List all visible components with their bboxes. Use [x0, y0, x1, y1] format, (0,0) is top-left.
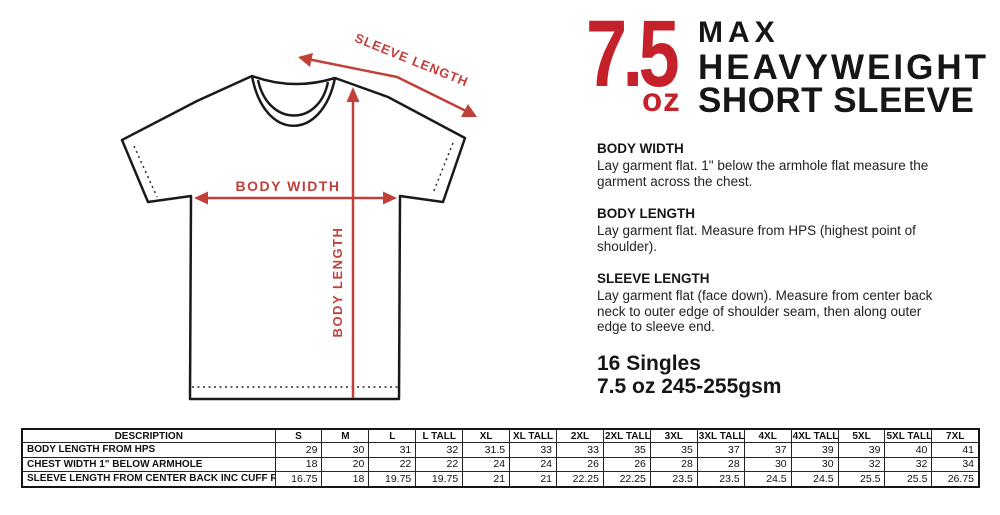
size-table-value-cell: 37: [697, 443, 744, 458]
size-table-header-cell: L TALL: [416, 429, 463, 443]
size-table-header-cell: 3XL TALL: [697, 429, 744, 443]
size-table-value-cell: 26: [603, 457, 650, 472]
size-table-value-cell: 18: [322, 472, 369, 487]
body-length-label: BODY LENGTH: [330, 227, 345, 338]
size-table-value-cell: 34: [932, 457, 979, 472]
size-table-header-cell: L: [369, 429, 416, 443]
size-table-value-cell: 22: [416, 457, 463, 472]
size-table-value-cell: 24: [463, 457, 510, 472]
size-table-value-cell: 25.5: [838, 472, 885, 487]
spec-text: Lay garment flat. 1" below the armhole f…: [597, 158, 997, 189]
size-table-header-cell: XL TALL: [510, 429, 557, 443]
size-table-value-cell: 23.5: [697, 472, 744, 487]
size-table-value-cell: 32: [416, 443, 463, 458]
size-table-value-cell: 19.75: [369, 472, 416, 487]
size-table-value-cell: 24.5: [791, 472, 838, 487]
size-table-value-cell: 28: [650, 457, 697, 472]
spec-heading: BODY WIDTH: [597, 141, 997, 156]
size-table-value-cell: 20: [322, 457, 369, 472]
size-table-value-cell: 28: [697, 457, 744, 472]
spec-text: Lay garment flat. Measure from HPS (high…: [597, 223, 997, 254]
size-table-header-cell: 7XL: [932, 429, 979, 443]
weight-unit: oz: [642, 83, 681, 116]
spec-text: Lay garment flat (face down). Measure fr…: [597, 288, 997, 335]
size-table-header-cell: 4XL: [744, 429, 791, 443]
spec-heading: SLEEVE LENGTH: [597, 271, 997, 286]
size-table-header-cell: 5XL: [838, 429, 885, 443]
size-table-row: CHEST WIDTH 1" BELOW ARMHOLE182022222424…: [22, 457, 979, 472]
size-table-value-cell: 40: [885, 443, 932, 458]
size-table-value-cell: 31: [369, 443, 416, 458]
size-table-value-cell: 22.25: [603, 472, 650, 487]
size-table-value-cell: 39: [838, 443, 885, 458]
size-table-value-cell: 25.5: [885, 472, 932, 487]
title-line-heavyweight: HEAVYWEIGHT: [698, 50, 989, 85]
size-table-value-cell: 39: [791, 443, 838, 458]
size-table-header-cell: M: [322, 429, 369, 443]
size-table-value-cell: 21: [510, 472, 557, 487]
size-table-value-cell: 16.75: [275, 472, 322, 487]
size-table-value-cell: 26.75: [932, 472, 979, 487]
size-table-value-cell: 32: [838, 457, 885, 472]
size-table-value-cell: 30: [744, 457, 791, 472]
fabric-info: 16 Singles 7.5 oz 245-255gsm: [597, 352, 781, 398]
size-table-value-cell: 32: [885, 457, 932, 472]
size-table-value-cell: 22.25: [557, 472, 604, 487]
size-table-value-cell: 33: [557, 443, 604, 458]
fabric-singles: 16 Singles: [597, 352, 781, 375]
spec-body-length: BODY LENGTH Lay garment flat. Measure fr…: [597, 206, 997, 254]
size-table-header-cell: 4XL TALL: [791, 429, 838, 443]
size-table-value-cell: 37: [744, 443, 791, 458]
fabric-weight: 7.5 oz 245-255gsm: [597, 375, 781, 398]
title-line-short-sleeve: SHORT SLEEVE: [698, 83, 974, 118]
size-table-value-cell: 35: [650, 443, 697, 458]
tshirt-outline-shape: [122, 76, 465, 399]
spec-body-width: BODY WIDTH Lay garment flat. 1" below th…: [597, 141, 997, 189]
size-table-value-cell: 24: [510, 457, 557, 472]
size-table-row-label: CHEST WIDTH 1" BELOW ARMHOLE: [22, 457, 275, 472]
title-line-max: MAX: [698, 18, 780, 48]
size-table-value-cell: 26: [557, 457, 604, 472]
tshirt-diagram: BODY WIDTH BODY LENGTH SLEEVE LENGTH: [0, 0, 580, 420]
size-table-header-cell: 3XL: [650, 429, 697, 443]
spec-heading: BODY LENGTH: [597, 206, 997, 221]
size-table-value-cell: 29: [275, 443, 322, 458]
sleeve-length-label: SLEEVE LENGTH: [353, 30, 471, 89]
size-table-row-label: BODY LENGTH FROM HPS: [22, 443, 275, 458]
size-table-header-cell: 2XL TALL: [603, 429, 650, 443]
size-table-value-cell: 41: [932, 443, 979, 458]
size-table-header-cell: DESCRIPTION: [22, 429, 275, 443]
measurement-instructions: BODY WIDTH Lay garment flat. 1" below th…: [597, 141, 997, 352]
size-table-value-cell: 18: [275, 457, 322, 472]
size-table-body: BODY LENGTH FROM HPS2930313231.533333535…: [22, 443, 979, 487]
size-chart-page: BODY WIDTH BODY LENGTH SLEEVE LENGTH 7.5…: [0, 0, 1000, 515]
sleeve-length-arrowhead-left: [298, 53, 313, 67]
size-table-row-label: SLEEVE LENGTH FROM CENTER BACK INC CUFF …: [22, 472, 275, 487]
size-table-value-cell: 19.75: [416, 472, 463, 487]
size-table-value-cell: 24.5: [744, 472, 791, 487]
size-table-header-cell: 2XL: [557, 429, 604, 443]
body-width-label: BODY WIDTH: [236, 178, 341, 194]
size-table-header-cell: 5XL TALL: [885, 429, 932, 443]
size-table-value-cell: 30: [791, 457, 838, 472]
size-table-row: SLEEVE LENGTH FROM CENTER BACK INC CUFF …: [22, 472, 979, 487]
size-table-value-cell: 33: [510, 443, 557, 458]
size-table-value-cell: 22: [369, 457, 416, 472]
size-table-value-cell: 23.5: [650, 472, 697, 487]
size-table-row: BODY LENGTH FROM HPS2930313231.533333535…: [22, 443, 979, 458]
size-table-header-cell: XL: [463, 429, 510, 443]
size-table-value-cell: 35: [603, 443, 650, 458]
size-table: DESCRIPTIONSMLL TALLXLXL TALL2XL2XL TALL…: [21, 428, 980, 488]
size-table-value-cell: 30: [322, 443, 369, 458]
spec-sleeve-length: SLEEVE LENGTH Lay garment flat (face dow…: [597, 271, 997, 335]
size-table-header-row: DESCRIPTIONSMLL TALLXLXL TALL2XL2XL TALL…: [22, 429, 979, 443]
size-table-header-cell: S: [275, 429, 322, 443]
size-table-value-cell: 21: [463, 472, 510, 487]
size-table-value-cell: 31.5: [463, 443, 510, 458]
